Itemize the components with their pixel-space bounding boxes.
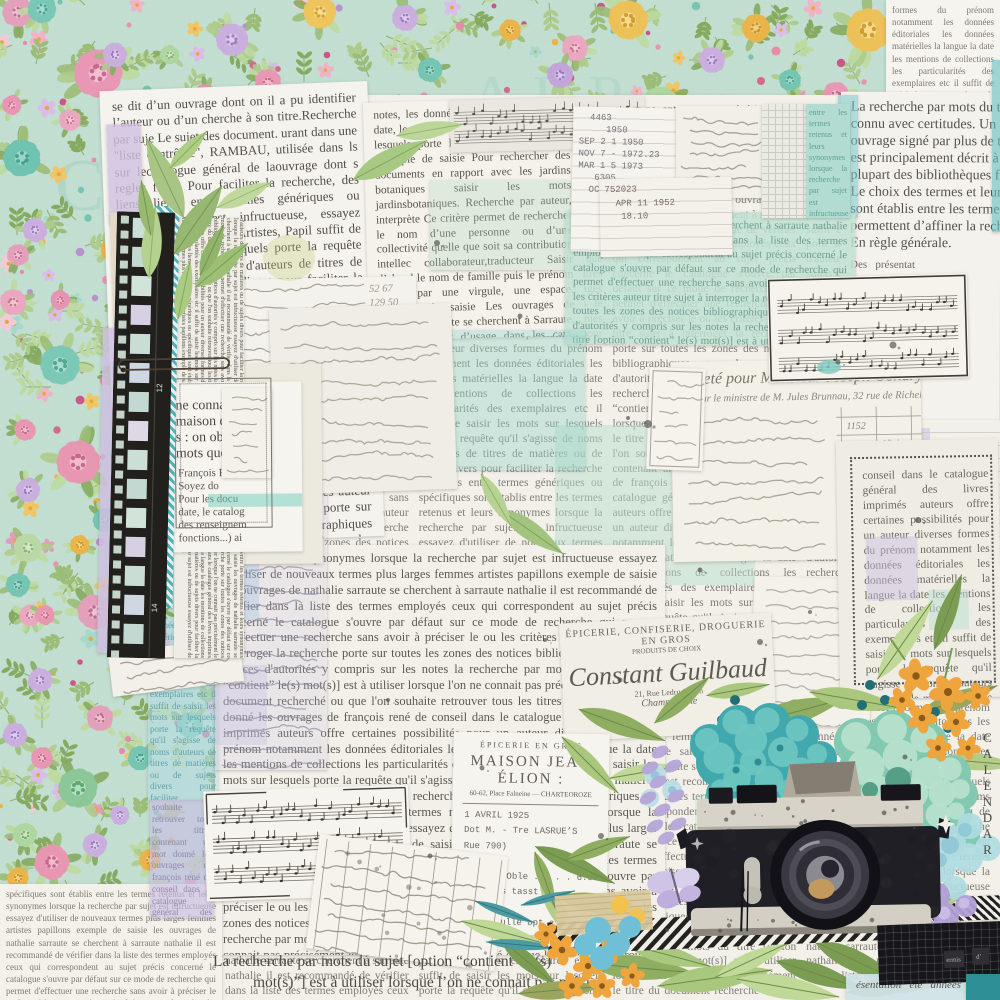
svg-text:52 67: 52 67	[369, 283, 394, 295]
svg-text:14: 14	[150, 603, 159, 613]
svg-text:12: 12	[155, 383, 164, 393]
svg-text:1152: 1152	[846, 421, 865, 432]
svg-text:pour le ministre de M. Jules B: pour le ministre de M. Jules Brunnau, 32…	[690, 390, 924, 405]
